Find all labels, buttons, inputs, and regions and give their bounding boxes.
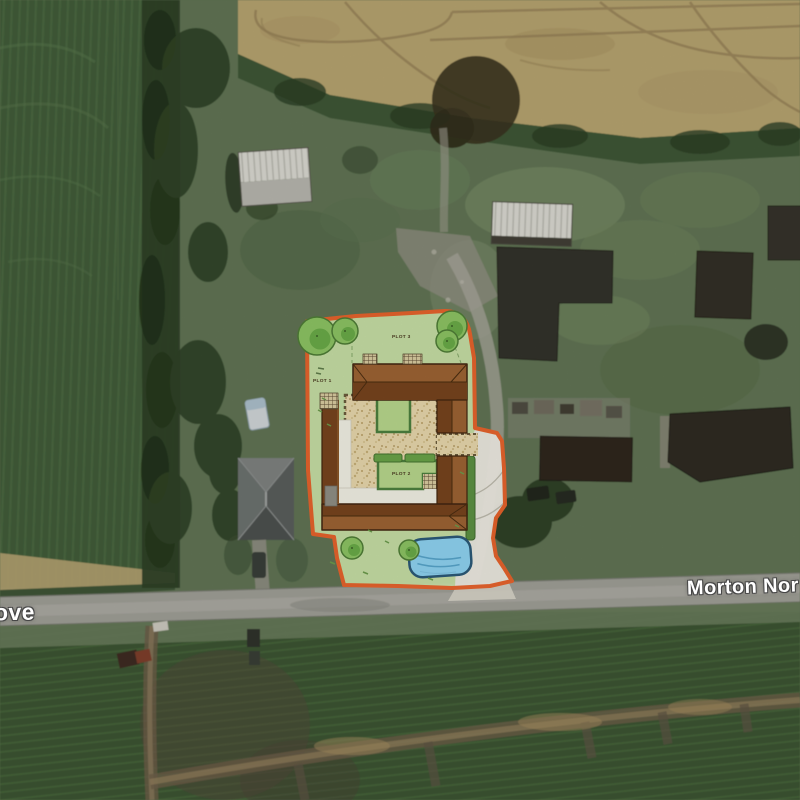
satellite-map-canvas[interactable]: ove Morton Nor PLOT 3 PLOT 1 PLOT 2 <box>0 0 800 800</box>
photo-grain <box>0 0 800 800</box>
site-plan-overlay <box>0 0 800 800</box>
